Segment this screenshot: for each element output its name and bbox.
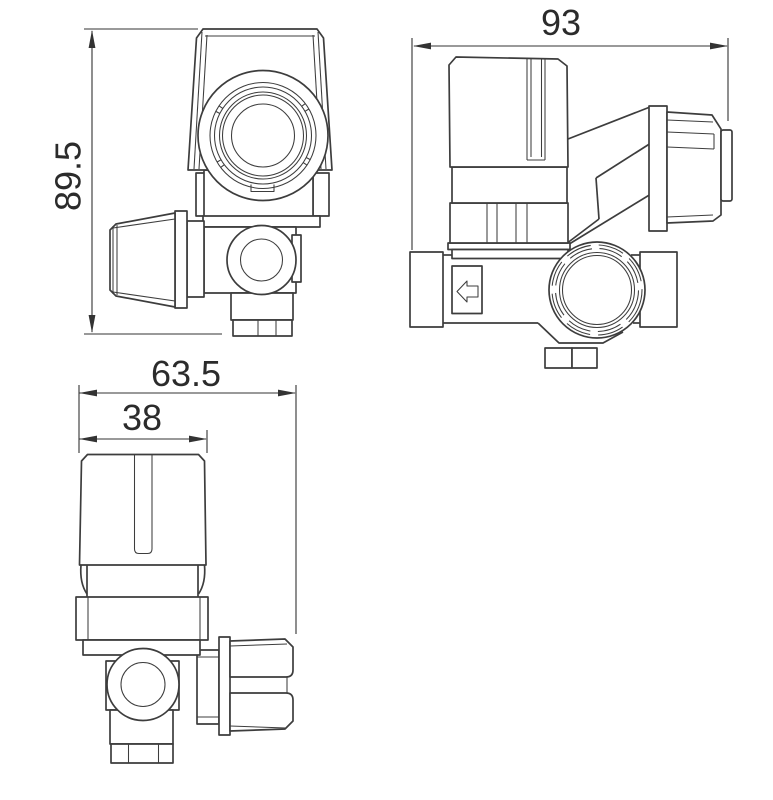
dim-label-overall-width: 63.5 [151, 353, 221, 394]
cap-ring-circles [198, 71, 328, 201]
view-top: 89.5 [48, 29, 332, 336]
view-front: 63.5 38 [76, 353, 296, 763]
valve-body-front [76, 597, 208, 655]
technical-drawing-page: 89.5 [0, 0, 773, 800]
side-port-circle [227, 226, 296, 295]
arrowhead-right [189, 436, 207, 443]
side-connector-front [197, 637, 293, 735]
knob-side [449, 57, 568, 167]
dim-label-knob-width: 38 [122, 397, 162, 438]
outlet-foot-top [231, 293, 293, 336]
dimension-knob-width: 38 [79, 397, 207, 453]
arrowhead-right [710, 43, 728, 50]
arrowhead-left [79, 436, 97, 443]
dim-label-width: 93 [541, 2, 581, 43]
arrowhead-down [89, 315, 96, 333]
valve-dimension-drawing: 89.5 [0, 0, 773, 800]
dim-label-height: 89.5 [48, 141, 89, 211]
arrowhead-right [278, 390, 296, 397]
arrowhead-left [413, 43, 431, 50]
side-connector-top [110, 211, 204, 308]
upper-connector [649, 106, 732, 231]
diagonal-duct [562, 107, 651, 247]
arrowhead-up [89, 30, 96, 48]
port-circle-front [107, 649, 179, 721]
knob-front [80, 455, 207, 598]
valve-body-side [448, 167, 570, 259]
view-side: 93 [410, 2, 732, 368]
arrowhead-left [79, 390, 97, 397]
